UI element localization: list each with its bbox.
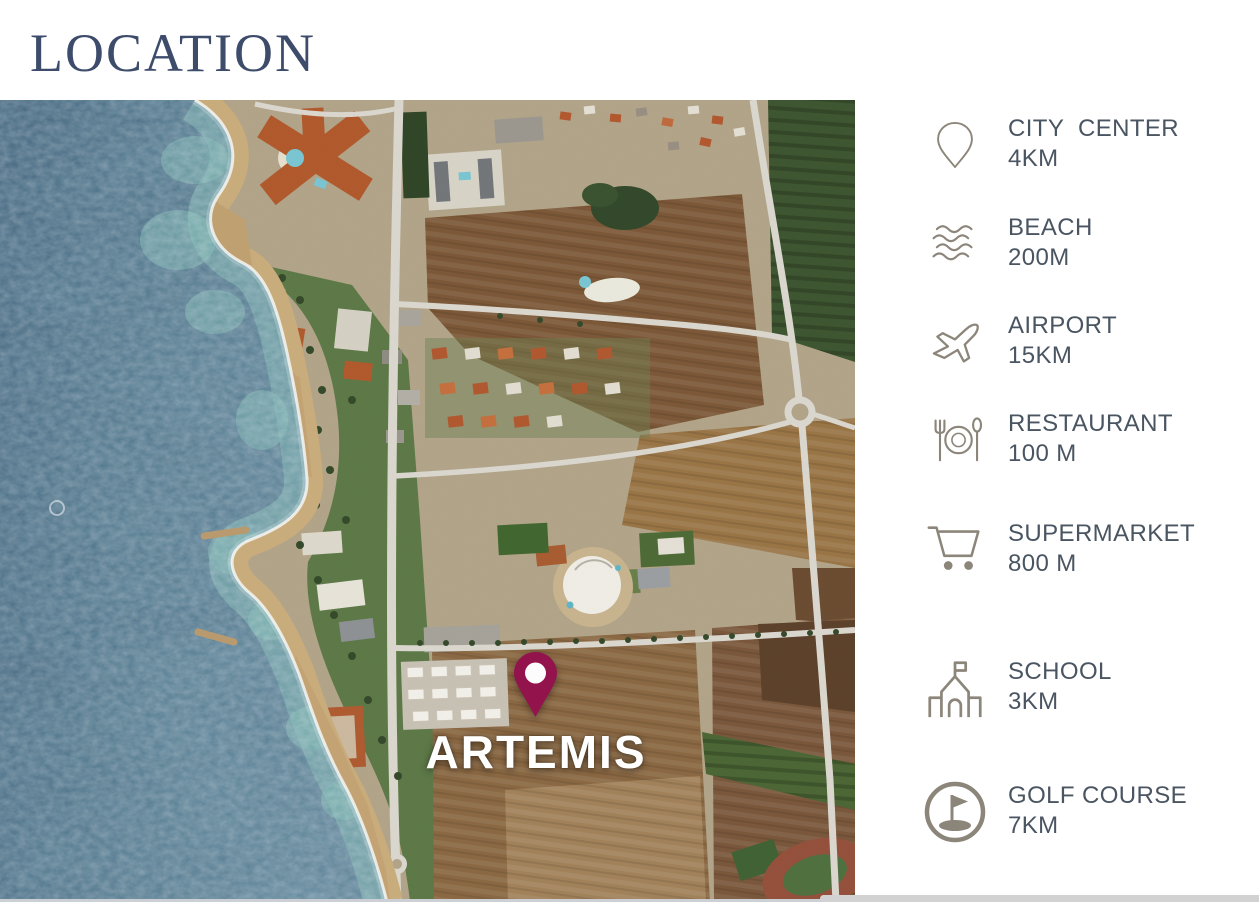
amenity-distance: 100 M xyxy=(1008,439,1173,469)
amenity-airport: AIRPORT 15KM xyxy=(855,306,1259,396)
amenities-panel: CITY CENTER 4KM BEACH 200M xyxy=(855,100,1259,902)
amenity-distance: 4KM xyxy=(1008,144,1179,174)
project-name-label: ARTEMIS xyxy=(396,725,676,779)
amenity-supermarket: SUPERMARKET 800 M xyxy=(855,514,1259,604)
amenity-beach: BEACH 200M xyxy=(855,208,1259,298)
airplane-icon xyxy=(919,306,991,378)
amenity-city-center: CITY CENTER 4KM xyxy=(855,109,1259,199)
amenity-school: SCHOOL 3KM xyxy=(855,652,1259,742)
amenity-label: SUPERMARKET xyxy=(1008,519,1195,549)
golf-course-icon xyxy=(919,776,991,848)
amenity-label: SCHOOL xyxy=(1008,657,1112,687)
header: LOCATION xyxy=(0,0,1259,100)
map-pin-icon xyxy=(919,109,991,181)
amenity-distance: 800 M xyxy=(1008,549,1195,579)
amenity-distance: 15KM xyxy=(1008,341,1117,371)
amenity-label: BEACH xyxy=(1008,213,1093,243)
amenity-distance: 7KM xyxy=(1008,811,1187,841)
waves-icon xyxy=(919,208,991,280)
amenity-restaurant: RESTAURANT 100 M xyxy=(855,404,1259,494)
amenity-golf: GOLF COURSE 7KM xyxy=(855,776,1259,866)
amenity-distance: 200M xyxy=(1008,243,1093,273)
restaurant-icon xyxy=(919,404,991,476)
amenity-label: GOLF COURSE xyxy=(1008,781,1187,811)
page-title: LOCATION xyxy=(30,22,316,84)
amenity-distance: 3KM xyxy=(1008,687,1112,717)
location-pin-icon xyxy=(514,652,557,717)
amenity-label: CITY CENTER xyxy=(1008,114,1179,144)
bottom-accent-bar xyxy=(820,895,1259,902)
satellite-map-image xyxy=(0,100,855,902)
amenity-label: AIRPORT xyxy=(1008,311,1117,341)
location-slide: LOCATION xyxy=(0,0,1259,902)
amenity-label: RESTAURANT xyxy=(1008,409,1173,439)
school-icon xyxy=(919,652,991,724)
shopping-cart-icon xyxy=(919,514,991,586)
satellite-map: ARTEMIS xyxy=(0,100,855,902)
